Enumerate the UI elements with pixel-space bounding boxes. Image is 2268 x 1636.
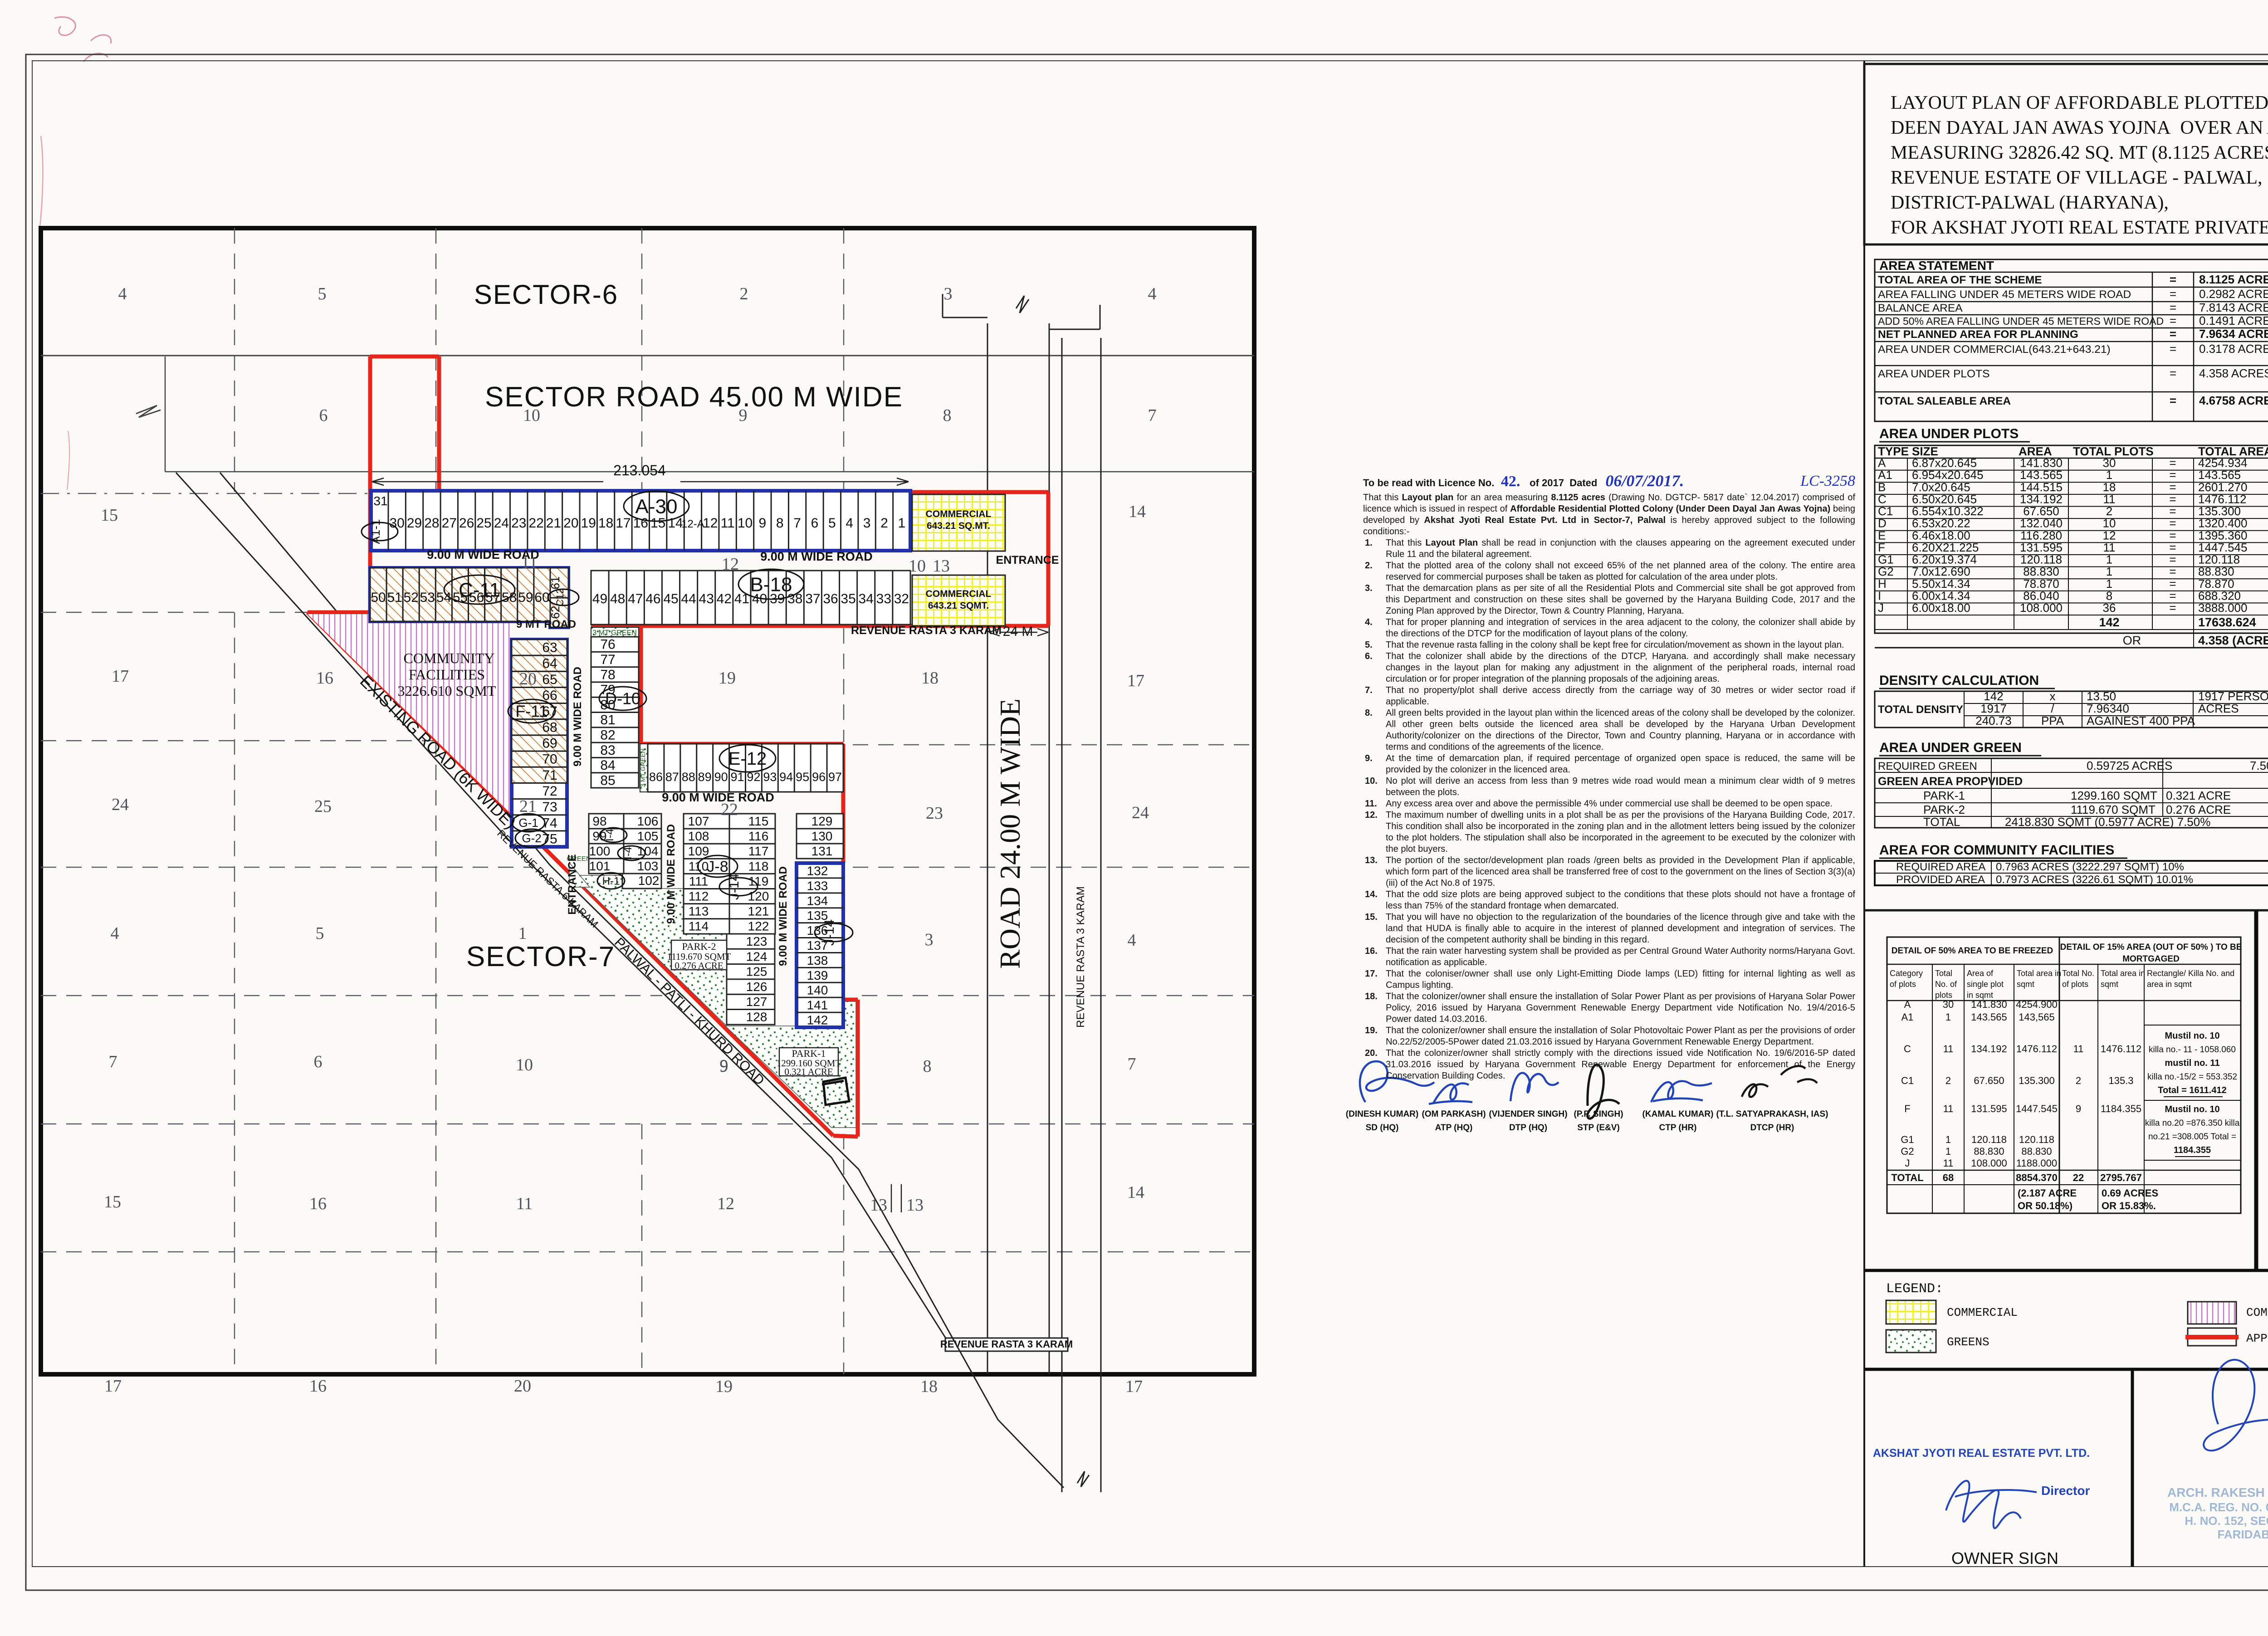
svg-text:TOTAL: TOTAL xyxy=(1891,1172,1923,1183)
svg-text:REVENUE RASTA 3 KARAM: REVENUE RASTA 3 KARAM xyxy=(940,1338,1073,1350)
svg-text:7.0x20.645: 7.0x20.645 xyxy=(1912,480,1970,494)
svg-text:6.87x20.645: 6.87x20.645 xyxy=(1912,456,1977,470)
svg-text:I-4: I-4 xyxy=(622,847,634,860)
svg-text:89: 89 xyxy=(698,770,712,784)
svg-text:4: 4 xyxy=(1148,284,1157,303)
svg-text:4.358 (ACRES): 4.358 (ACRES) xyxy=(2198,634,2268,647)
svg-text:1119.670 SQMT: 1119.670 SQMT xyxy=(2071,803,2156,816)
svg-text:123: 123 xyxy=(746,934,767,948)
svg-text:OR 15.83%.: OR 15.83%. xyxy=(2102,1200,2156,1211)
svg-text:no.21 =308.005 Total =: no.21 =308.005 Total = xyxy=(2148,1132,2236,1142)
svg-text:3888.000: 3888.000 xyxy=(2198,601,2247,615)
svg-text:1: 1 xyxy=(2106,468,2112,482)
svg-text:ADD 50% AREA FALLING UNDER 45: ADD 50% AREA FALLING UNDER 45 METERS WID… xyxy=(1878,315,2164,327)
svg-text:143,565: 143,565 xyxy=(2019,1011,2055,1023)
svg-text:141.830: 141.830 xyxy=(1971,999,2007,1010)
svg-text:114: 114 xyxy=(689,919,709,933)
svg-text:49: 49 xyxy=(592,591,607,606)
svg-text:86.040: 86.040 xyxy=(2023,589,2059,602)
svg-text:D-10: D-10 xyxy=(605,689,640,708)
svg-text:7.9634 ACRES: 7.9634 ACRES xyxy=(2199,327,2268,341)
svg-text:6.554x10.322: 6.554x10.322 xyxy=(1912,504,1984,518)
svg-text:51: 51 xyxy=(387,590,402,605)
svg-text:PROVIDED AREA: PROVIDED AREA xyxy=(1896,874,1985,886)
svg-text:CTP (HR): CTP (HR) xyxy=(1659,1123,1696,1133)
svg-text:106: 106 xyxy=(637,814,659,828)
svg-text:GREENS: GREENS xyxy=(1947,1335,1989,1349)
svg-text:Total No.: Total No. xyxy=(2062,969,2094,978)
svg-text:6.50x20.645: 6.50x20.645 xyxy=(1912,492,1977,506)
svg-text:132: 132 xyxy=(807,864,828,878)
svg-text:86: 86 xyxy=(649,770,663,784)
svg-text:6: 6 xyxy=(314,1052,323,1071)
svg-text:129: 129 xyxy=(811,814,833,828)
svg-text:G1: G1 xyxy=(1901,1134,1914,1145)
svg-text:0.321 ACRE: 0.321 ACRE xyxy=(784,1066,833,1077)
svg-text:6.20x19.374: 6.20x19.374 xyxy=(1912,553,1977,566)
svg-text:24: 24 xyxy=(1132,803,1149,822)
svg-text:10: 10 xyxy=(516,1055,533,1074)
svg-text:11: 11 xyxy=(516,1194,533,1213)
svg-text:1: 1 xyxy=(2106,553,2112,566)
svg-text:7.96340: 7.96340 xyxy=(2087,702,2129,715)
svg-text:1: 1 xyxy=(2106,565,2112,578)
svg-text:ACRES: ACRES xyxy=(2198,702,2239,715)
svg-text:120.118: 120.118 xyxy=(2198,553,2240,566)
svg-text:No. of: No. of xyxy=(1935,980,1957,989)
svg-text:17: 17 xyxy=(1127,671,1144,690)
svg-text:TOTAL SALEABLE AREA: TOTAL SALEABLE AREA xyxy=(1878,395,2011,407)
svg-text:125: 125 xyxy=(746,965,767,979)
svg-text:112: 112 xyxy=(689,889,709,903)
svg-text:64: 64 xyxy=(542,656,557,671)
svg-text:REVENUE RASTA 3 KARAM: REVENUE RASTA 3 KARAM xyxy=(1075,886,1087,1028)
svg-text:110: 110 xyxy=(689,859,709,873)
svg-text:134: 134 xyxy=(807,894,828,908)
svg-text:47: 47 xyxy=(628,591,643,606)
svg-text:4.358 ACRES: 4.358 ACRES xyxy=(2199,366,2268,380)
svg-text:GREEN AREA PROPVIDED: GREEN AREA PROPVIDED xyxy=(1878,775,2023,788)
svg-text:OWNER SIGN: OWNER SIGN xyxy=(1951,1549,2058,1568)
svg-text:13: 13 xyxy=(870,1196,887,1215)
svg-text:71: 71 xyxy=(542,768,557,783)
svg-text:138: 138 xyxy=(807,953,828,967)
svg-text:C12: C12 xyxy=(554,588,566,606)
svg-text:0.59725 ACRES: 0.59725 ACRES xyxy=(2087,759,2172,772)
svg-text:120.118: 120.118 xyxy=(2020,553,2062,566)
svg-text:ARCH. RAKESH VASUDEVA: ARCH. RAKESH VASUDEVA xyxy=(2167,1485,2268,1499)
svg-text:43: 43 xyxy=(699,591,714,606)
svg-text:83: 83 xyxy=(600,743,615,758)
svg-text:25: 25 xyxy=(314,797,332,816)
svg-text:46: 46 xyxy=(645,591,660,606)
svg-text:(DINESH KUMAR): (DINESH KUMAR) xyxy=(1346,1109,1418,1119)
svg-text:9: 9 xyxy=(759,516,767,531)
svg-text:144.515: 144.515 xyxy=(2020,480,2063,494)
svg-text:6.53x20.22: 6.53x20.22 xyxy=(1912,517,1970,530)
svg-text:3: 3 xyxy=(925,930,934,949)
svg-text:0.276 ACRE: 0.276 ACRE xyxy=(2166,803,2231,816)
svg-text:36: 36 xyxy=(2103,601,2116,615)
svg-text:37: 37 xyxy=(805,591,820,606)
svg-text:1917: 1917 xyxy=(1980,702,2007,715)
svg-text:18: 18 xyxy=(598,516,613,531)
svg-text:1476.112: 1476.112 xyxy=(2101,1043,2141,1055)
svg-text:11: 11 xyxy=(721,516,735,531)
svg-text:=: = xyxy=(2170,394,2176,407)
svg-text:0.7973 ACRES (3226.61 SQMT) 10: 0.7973 ACRES (3226.61 SQMT) 10.01% xyxy=(1996,874,2193,886)
svg-text:J-14: J-14 xyxy=(822,919,837,946)
svg-text:G2: G2 xyxy=(1878,565,1894,578)
svg-text:=: = xyxy=(2170,273,2176,286)
svg-text:=: = xyxy=(2169,565,2176,578)
svg-text:Area of: Area of xyxy=(1967,969,1994,978)
svg-text:FACILITIES: FACILITIES xyxy=(409,666,485,683)
svg-text:116: 116 xyxy=(748,829,769,843)
svg-text:4.6758 ACRES: 4.6758 ACRES xyxy=(2199,394,2268,407)
svg-text:7.8143 ACRES: 7.8143 ACRES xyxy=(2199,301,2268,314)
svg-text:/: / xyxy=(2051,702,2054,715)
svg-text:135.300: 135.300 xyxy=(2019,1075,2055,1086)
svg-text:143.565: 143.565 xyxy=(2020,468,2063,482)
svg-text:28: 28 xyxy=(424,516,439,531)
svg-text:0.321 ACRE: 0.321 ACRE xyxy=(2166,789,2231,802)
svg-text:12: 12 xyxy=(722,555,739,574)
svg-text:643.21 SQMT.: 643.21 SQMT. xyxy=(928,601,989,611)
svg-text:131: 131 xyxy=(811,844,833,858)
svg-text:3: 3 xyxy=(944,284,953,303)
svg-text:1447.545: 1447.545 xyxy=(2198,541,2247,554)
svg-text:6.46x18.00: 6.46x18.00 xyxy=(1912,528,1970,542)
svg-text:H: H xyxy=(1878,577,1887,591)
svg-text:10: 10 xyxy=(738,516,753,531)
svg-text:20: 20 xyxy=(519,669,537,689)
svg-text:10: 10 xyxy=(909,557,926,576)
svg-text:1320.400: 1320.400 xyxy=(2198,517,2247,530)
svg-text:7: 7 xyxy=(1128,1055,1136,1074)
svg-text:TOTAL AREA OF THE SCHEME: TOTAL AREA OF THE SCHEME xyxy=(1878,274,2042,286)
svg-text:68: 68 xyxy=(1943,1172,1954,1183)
svg-text:17: 17 xyxy=(104,1377,122,1396)
svg-text:88.830: 88.830 xyxy=(1974,1146,2004,1157)
svg-text:15: 15 xyxy=(650,516,665,531)
svg-text:29: 29 xyxy=(407,516,422,531)
svg-text:1917 PERSONS: 1917 PERSONS xyxy=(2198,689,2268,703)
svg-text:A-30: A-30 xyxy=(635,495,678,518)
svg-text:(VIJENDER SINGH): (VIJENDER SINGH) xyxy=(1489,1109,1567,1119)
svg-text:13.50: 13.50 xyxy=(2087,689,2116,703)
svg-text:J-8: J-8 xyxy=(707,858,728,875)
svg-text:8.1125 ACRES: 8.1125 ACRES xyxy=(2199,273,2268,286)
svg-text:121: 121 xyxy=(748,904,769,918)
svg-text:J: J xyxy=(1905,1157,1910,1169)
svg-text:116.280: 116.280 xyxy=(2020,528,2062,542)
svg-text:10: 10 xyxy=(523,406,540,425)
svg-text:17: 17 xyxy=(112,667,129,686)
svg-text:E: E xyxy=(1878,528,1886,542)
svg-text:6.20X21.225: 6.20X21.225 xyxy=(1912,541,1979,554)
svg-text:5: 5 xyxy=(318,284,327,303)
svg-text:139: 139 xyxy=(807,968,828,982)
svg-text:REQUIRED GREEN: REQUIRED GREEN xyxy=(1878,760,1977,772)
svg-text:135.3: 135.3 xyxy=(2108,1075,2133,1086)
svg-text:21: 21 xyxy=(519,797,537,816)
svg-text:(KAMAL KUMAR): (KAMAL KUMAR) xyxy=(1642,1109,1714,1119)
svg-text:9: 9 xyxy=(739,406,748,425)
svg-text:643.21 SQ.MT.: 643.21 SQ.MT. xyxy=(927,521,990,531)
svg-text:G-2: G-2 xyxy=(522,831,541,845)
svg-text:J: J xyxy=(1878,601,1884,615)
svg-text:DETAIL OF 15% AREA (OUT OF 50%: DETAIL OF 15% AREA (OUT OF 50% ) TO BE xyxy=(2060,943,2242,952)
svg-text:=: = xyxy=(2170,314,2176,327)
svg-text:134.192: 134.192 xyxy=(2020,492,2063,506)
svg-text:108: 108 xyxy=(688,829,709,843)
svg-text:35: 35 xyxy=(841,591,855,606)
svg-text:1476.112: 1476.112 xyxy=(2016,1043,2057,1055)
svg-text:APPLIED LICENCE BOUNDARY: APPLIED LICENCE BOUNDARY xyxy=(2246,1332,2268,1345)
svg-text:1: 1 xyxy=(1945,1011,1951,1023)
svg-text:100: 100 xyxy=(589,844,611,858)
svg-text:AREA UNDER COMMERCIAL(643.21+6: AREA UNDER COMMERCIAL(643.21+643.21) xyxy=(1878,343,2111,356)
svg-text:1476.112: 1476.112 xyxy=(2198,492,2247,506)
svg-text:0.3178 ACRE: 0.3178 ACRE xyxy=(2199,342,2268,356)
svg-text:17638.624: 17638.624 xyxy=(2198,615,2256,629)
svg-text:11: 11 xyxy=(1943,1103,1954,1114)
svg-text:34: 34 xyxy=(859,591,874,606)
svg-text:93: 93 xyxy=(763,770,777,784)
svg-text:16: 16 xyxy=(309,1377,327,1396)
svg-text:AGAINEST 400 PPA: AGAINEST 400 PPA xyxy=(2087,714,2195,728)
svg-text:sqmt: sqmt xyxy=(2101,980,2118,989)
svg-text:16: 16 xyxy=(309,1194,327,1213)
svg-text:30: 30 xyxy=(2103,456,2116,470)
svg-text:A1: A1 xyxy=(1901,1011,1914,1023)
svg-text:24 M: 24 M xyxy=(1003,624,1033,639)
svg-text:11: 11 xyxy=(2103,541,2116,554)
svg-text:5: 5 xyxy=(316,924,324,943)
svg-text:3226.610 SQMT: 3226.610 SQMT xyxy=(398,683,496,699)
svg-text:plots: plots xyxy=(1935,991,1952,1000)
svg-text:141.830: 141.830 xyxy=(2020,456,2063,470)
svg-text:Total area in: Total area in xyxy=(2101,969,2145,978)
svg-text:44: 44 xyxy=(681,591,696,606)
svg-text:G2: G2 xyxy=(1901,1146,1914,1157)
svg-text:=: = xyxy=(2169,480,2176,494)
svg-text:COMMERCIAL: COMMERCIAL xyxy=(926,589,992,599)
svg-text:102: 102 xyxy=(638,874,660,888)
svg-text:87: 87 xyxy=(665,770,679,784)
svg-text:9.00 M WIDE ROAD: 9.00 M WIDE ROAD xyxy=(572,667,584,767)
svg-text:(T.L. SATYAPRAKASH, IAS): (T.L. SATYAPRAKASH, IAS) xyxy=(1716,1109,1828,1119)
svg-text:108.000: 108.000 xyxy=(1971,1157,2007,1169)
svg-text:94: 94 xyxy=(779,770,793,784)
svg-text:141: 141 xyxy=(807,998,828,1012)
svg-text:Total area in: Total area in xyxy=(2017,969,2061,978)
svg-text:3: 3 xyxy=(863,516,871,531)
svg-text:B-18: B-18 xyxy=(750,573,792,596)
svg-text:G-1: G-1 xyxy=(518,816,538,830)
svg-text:=: = xyxy=(2170,301,2176,314)
svg-text:132.040: 132.040 xyxy=(2020,517,2063,530)
svg-text:142: 142 xyxy=(2099,615,2119,629)
svg-text:53: 53 xyxy=(420,590,435,605)
svg-text:B: B xyxy=(1878,480,1886,494)
svg-text:12: 12 xyxy=(2103,528,2116,542)
svg-text:1: 1 xyxy=(2106,577,2112,591)
svg-text:2: 2 xyxy=(2106,504,2112,518)
svg-text:6: 6 xyxy=(811,516,819,531)
svg-text:107: 107 xyxy=(688,814,709,828)
svg-text:OR: OR xyxy=(2123,634,2141,647)
svg-text:SD (HQ): SD (HQ) xyxy=(1366,1123,1399,1133)
svg-text:=: = xyxy=(2169,528,2176,542)
svg-text:C1: C1 xyxy=(1901,1075,1914,1086)
svg-text:6.954x20.645: 6.954x20.645 xyxy=(1912,468,1984,482)
svg-text:131.595: 131.595 xyxy=(1971,1103,2007,1114)
svg-text:SECTOR-7: SECTOR-7 xyxy=(466,941,615,972)
svg-text:59: 59 xyxy=(518,590,533,605)
svg-text:128: 128 xyxy=(746,1010,767,1024)
svg-text:C: C xyxy=(1878,492,1887,506)
svg-text:61: 61 xyxy=(548,576,562,590)
svg-text:131.595: 131.595 xyxy=(2020,541,2063,554)
svg-text:=: = xyxy=(2169,577,2176,591)
svg-text:7: 7 xyxy=(793,516,801,531)
svg-text:Director: Director xyxy=(2041,1484,2090,1498)
svg-text:ROAD 24.00 M WIDE: ROAD 24.00 M WIDE xyxy=(994,698,1026,969)
svg-text:TOTAL DENSITY: TOTAL DENSITY xyxy=(1878,703,1963,716)
svg-text:sqmt: sqmt xyxy=(2017,980,2034,989)
svg-text:11: 11 xyxy=(521,553,538,572)
svg-text:=: = xyxy=(2169,468,2176,482)
svg-text:140: 140 xyxy=(807,983,828,997)
svg-text:=: = xyxy=(2169,541,2176,554)
svg-text:14: 14 xyxy=(1127,1183,1144,1202)
svg-text:88.830: 88.830 xyxy=(2198,565,2234,578)
svg-text:142: 142 xyxy=(807,1013,828,1027)
svg-text:8: 8 xyxy=(2106,589,2112,602)
svg-text:101: 101 xyxy=(589,859,611,873)
svg-text:AREA UNDER GREEN: AREA UNDER GREEN xyxy=(1879,740,2022,755)
svg-text:Rectangle/ Killa No. and: Rectangle/ Killa No. and xyxy=(2147,969,2234,978)
svg-text:DTP (HQ): DTP (HQ) xyxy=(1509,1123,1547,1133)
svg-text:4: 4 xyxy=(118,284,127,303)
svg-text:H-1: H-1 xyxy=(602,875,620,887)
svg-text:6.00x18.00: 6.00x18.00 xyxy=(1912,601,1970,615)
svg-text:4: 4 xyxy=(1128,931,1136,950)
svg-text:688.320: 688.320 xyxy=(2198,589,2241,602)
svg-text:27: 27 xyxy=(442,516,457,531)
svg-text:NET PLANNED AREA FOR PLANNING: NET PLANNED AREA FOR PLANNING xyxy=(1878,328,2078,341)
svg-text:24: 24 xyxy=(112,795,129,814)
svg-text:7: 7 xyxy=(109,1052,117,1071)
svg-text:36: 36 xyxy=(823,591,838,606)
svg-text:x: x xyxy=(2050,689,2056,703)
svg-text:ATP (HQ): ATP (HQ) xyxy=(1435,1123,1473,1133)
svg-text:135.300: 135.300 xyxy=(2198,504,2241,518)
svg-text:20: 20 xyxy=(563,516,578,531)
svg-text:killa no.20 =876.350 killa: killa no.20 =876.350 killa xyxy=(2145,1118,2240,1128)
svg-text:11: 11 xyxy=(1943,1157,1954,1169)
svg-text:81: 81 xyxy=(600,713,615,728)
svg-text:109: 109 xyxy=(688,844,709,858)
svg-text:AREA UNDER PLOTS: AREA UNDER PLOTS xyxy=(1878,368,1989,380)
svg-text:120.118: 120.118 xyxy=(1971,1134,2007,1145)
svg-text:10: 10 xyxy=(2103,517,2116,530)
svg-text:E-12: E-12 xyxy=(728,749,767,769)
svg-text:F: F xyxy=(1904,1103,1910,1114)
svg-text:M.C.A. REG. NO. CA/94/17500: M.C.A. REG. NO. CA/94/17500 xyxy=(2169,1500,2268,1514)
svg-text:19: 19 xyxy=(581,516,596,531)
svg-text:105: 105 xyxy=(637,829,659,843)
svg-text:0.2982 ACRES: 0.2982 ACRES xyxy=(2199,287,2268,301)
svg-text:22: 22 xyxy=(721,800,738,819)
svg-text:104: 104 xyxy=(637,844,659,858)
svg-text:of plots: of plots xyxy=(2062,980,2088,989)
svg-text:OR 50.18%): OR 50.18%) xyxy=(2018,1200,2072,1211)
svg-text:213.054: 213.054 xyxy=(613,462,666,479)
svg-text:9.00 M WIDE ROAD: 9.00 M WIDE ROAD xyxy=(662,791,774,804)
svg-text:117: 117 xyxy=(748,844,769,858)
svg-text:120.118: 120.118 xyxy=(2019,1134,2054,1145)
svg-text:C: C xyxy=(1904,1043,1911,1055)
svg-text:1184.355: 1184.355 xyxy=(2174,1145,2211,1155)
svg-text:67.650: 67.650 xyxy=(2023,504,2059,518)
svg-text:single plot: single plot xyxy=(1967,980,2004,989)
svg-text:1: 1 xyxy=(518,924,527,943)
svg-text:=: = xyxy=(2169,517,2176,530)
svg-text:H. NO. 152, SECTOR-18,: H. NO. 152, SECTOR-18, xyxy=(2185,1514,2268,1528)
svg-text:88.830: 88.830 xyxy=(2023,565,2059,578)
svg-text:21: 21 xyxy=(546,516,561,531)
svg-text:84: 84 xyxy=(600,758,615,773)
svg-text:BALANCE AREA: BALANCE AREA xyxy=(1878,302,1963,314)
svg-text:=: = xyxy=(2169,553,2176,566)
svg-text:12: 12 xyxy=(717,1194,734,1213)
svg-text:30: 30 xyxy=(1943,999,1954,1010)
svg-text:90: 90 xyxy=(714,770,728,784)
svg-text:1395.360: 1395.360 xyxy=(2198,528,2247,542)
svg-text:mustil no. 11: mustil no. 11 xyxy=(2165,1058,2219,1068)
svg-text:FARIDABAD: FARIDABAD xyxy=(2217,1528,2268,1541)
svg-text:31: 31 xyxy=(373,494,387,508)
svg-text:9 MT ROAD: 9 MT ROAD xyxy=(516,618,576,630)
svg-text:7: 7 xyxy=(1148,406,1157,425)
svg-text:108.000: 108.000 xyxy=(2020,601,2063,615)
svg-text:11: 11 xyxy=(2103,492,2116,506)
svg-text:82: 82 xyxy=(600,728,615,742)
svg-text:118: 118 xyxy=(748,859,769,873)
svg-text:9.00 M WIDE ROAD: 9.00 M WIDE ROAD xyxy=(777,866,789,966)
svg-text:2: 2 xyxy=(880,516,888,531)
svg-text:73: 73 xyxy=(542,800,557,815)
svg-text:STP (E&V): STP (E&V) xyxy=(1577,1123,1620,1133)
svg-text:=: = xyxy=(2169,589,2176,602)
svg-text:95: 95 xyxy=(796,770,809,784)
svg-text:2: 2 xyxy=(740,284,748,303)
svg-text:103: 103 xyxy=(637,859,659,873)
svg-text:19: 19 xyxy=(715,1377,733,1396)
svg-text:COMMERCIAL: COMMERCIAL xyxy=(1947,1306,2018,1319)
svg-text:17: 17 xyxy=(1125,1377,1143,1396)
svg-text:11: 11 xyxy=(1943,1043,1954,1055)
svg-text:F: F xyxy=(1878,541,1885,554)
svg-text:45: 45 xyxy=(663,591,678,606)
svg-text:22: 22 xyxy=(528,516,543,531)
svg-text:DTCP (HR): DTCP (HR) xyxy=(1750,1123,1794,1133)
svg-text:1447.545: 1447.545 xyxy=(2016,1103,2058,1114)
svg-text:=: = xyxy=(2169,504,2176,518)
